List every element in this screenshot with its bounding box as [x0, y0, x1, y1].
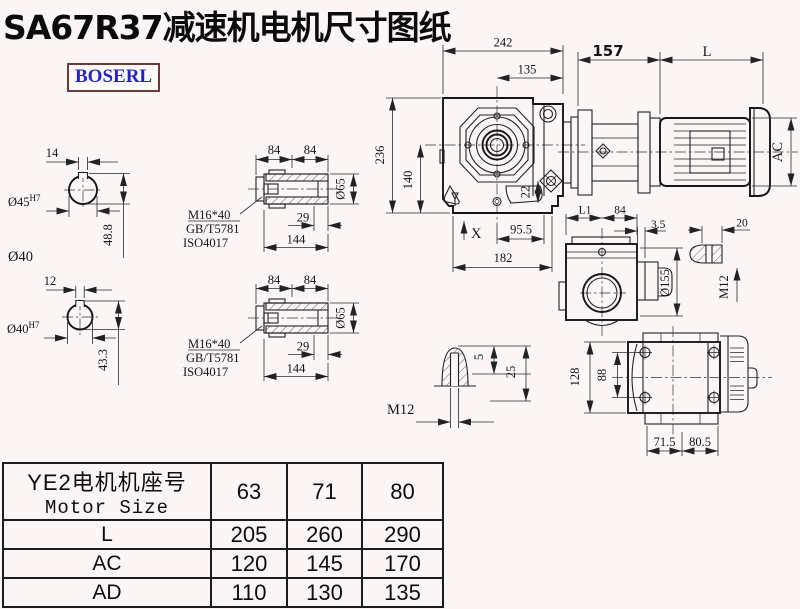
- label-std1: GB/T5781: [186, 351, 239, 365]
- table-header-cell: YE2电机机座号 Motor Size: [3, 463, 211, 520]
- dim-m12-side: M12: [717, 275, 731, 299]
- label-std1: GB/T5781: [186, 222, 239, 236]
- dim-144: 144: [287, 362, 307, 376]
- dim-height-433: 43.3: [96, 349, 110, 371]
- stud-detail: 5 25 M12: [387, 346, 531, 428]
- label-thread: M16*40: [188, 337, 230, 351]
- dim-128: 128: [568, 368, 582, 387]
- dim-84: 84: [614, 205, 626, 217]
- cell-L-80: 290: [362, 520, 443, 549]
- col-size-71: 71: [287, 463, 362, 520]
- gearbox-front-view: 242 135 236 140 22 X 95.5 182: [373, 36, 585, 273]
- label-thread: M16*40: [188, 208, 230, 222]
- dim-L: L: [703, 44, 712, 60]
- motor-size-table: YE2电机机座号 Motor Size 63 71 80 L 205 260 2…: [2, 462, 444, 608]
- hub-bore-detail-1: 14 Ø45H7 48.8 Ø40: [8, 146, 130, 265]
- gearbox-bottom-view: 128 88 71.5 80.5: [568, 326, 772, 456]
- table-row-AC: AC 120 145 170: [3, 549, 443, 578]
- gearbox-side-view: L1 84 3.5 Ø155: [559, 205, 683, 337]
- label-shaft-40: Ø40: [8, 249, 33, 265]
- dim-35: 3.5: [651, 219, 666, 231]
- cell-AD-80: 135: [362, 578, 443, 607]
- label-m12-stud: M12: [387, 402, 414, 418]
- row-label-L: L: [3, 520, 211, 549]
- dim-84b: 84: [304, 273, 317, 287]
- dim-dia-65: Ø65: [334, 307, 348, 329]
- table-row-L: L 205 260 290: [3, 520, 443, 549]
- label-x-marker: X: [471, 226, 482, 242]
- hub-bore-detail-2: 12 Ø40H7 43.3: [7, 274, 125, 385]
- dim-25: 25: [504, 366, 518, 379]
- table-header-cn: YE2电机机座号: [4, 465, 210, 497]
- dim-dia-155: Ø155: [658, 269, 672, 297]
- dim-5: 5: [472, 354, 486, 360]
- dim-144: 144: [287, 233, 307, 247]
- dim-dia-65: Ø65: [334, 178, 348, 200]
- cell-AD-63: 110: [211, 578, 287, 607]
- dim-L1: L1: [579, 205, 592, 217]
- col-size-63: 63: [211, 463, 287, 520]
- table-header-en: Motor Size: [4, 497, 210, 519]
- dim-715: 71.5: [654, 435, 676, 449]
- table-row-AD: AD 110 130 135: [3, 578, 443, 607]
- col-size-80: 80: [362, 463, 443, 520]
- dim-135: 135: [518, 63, 537, 77]
- cell-L-63: 205: [211, 520, 287, 549]
- dim-bore-45: Ø45H7: [8, 193, 41, 209]
- dim-955: 95.5: [510, 223, 532, 237]
- dim-242: 242: [494, 36, 513, 50]
- dim-20: 20: [736, 218, 748, 230]
- motor-assembly: 157 L AC: [558, 42, 798, 196]
- dim-84a: 84: [268, 143, 281, 157]
- dim-keyway-12: 12: [44, 274, 57, 288]
- dim-84a: 84: [268, 273, 281, 287]
- row-label-AC: AC: [3, 549, 211, 578]
- dim-height-488: 48.8: [101, 224, 115, 246]
- dim-bore-40: Ø40H7: [7, 320, 40, 336]
- dim-805: 80.5: [689, 435, 711, 449]
- dim-84b: 84: [304, 143, 317, 157]
- mounting-tab-detail: 20 M12: [688, 218, 750, 303]
- dim-182: 182: [494, 251, 513, 265]
- dim-236: 236: [373, 146, 387, 165]
- dim-keyway-14: 14: [46, 146, 59, 160]
- label-std2: ISO4017: [183, 236, 228, 250]
- dim-140: 140: [401, 171, 415, 190]
- label-std2: ISO4017: [183, 365, 228, 379]
- row-label-AD: AD: [3, 578, 211, 607]
- dim-157: 157: [592, 42, 623, 60]
- dim-22: 22: [519, 186, 533, 199]
- dim-29: 29: [297, 211, 310, 225]
- dim-AC: AC: [770, 142, 786, 162]
- cell-AD-71: 130: [287, 578, 362, 607]
- cell-AC-63: 120: [211, 549, 287, 578]
- cell-AC-71: 145: [287, 549, 362, 578]
- dim-88: 88: [595, 369, 609, 382]
- dim-29: 29: [297, 340, 310, 354]
- cell-L-71: 260: [287, 520, 362, 549]
- drawing-page: SA67R37减速机电机尺寸图纸 BOSERL 14 Ø45H7: [0, 0, 800, 609]
- cell-AC-80: 170: [362, 549, 443, 578]
